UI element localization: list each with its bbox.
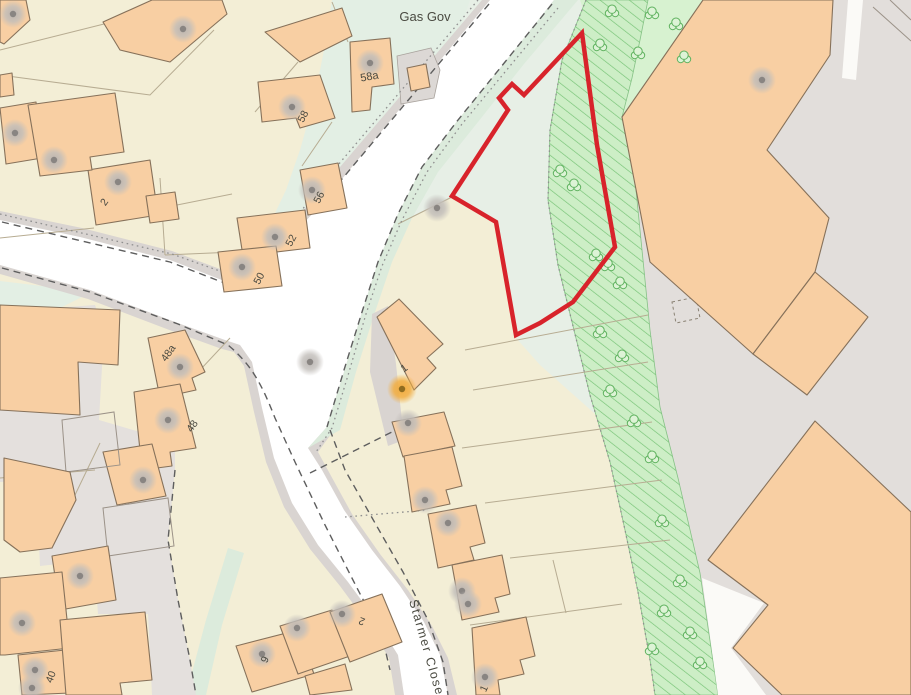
gray-canopy-dot <box>434 509 462 537</box>
gray-canopy-dot <box>40 146 68 174</box>
gray-canopy-dot <box>129 466 157 494</box>
map-viewport: Gas Gov58a58565250248a48409211Starmer Cl… <box>0 0 911 695</box>
gray-canopy-dot <box>748 66 776 94</box>
gray-canopy-dot <box>248 640 276 668</box>
gray-canopy-dot <box>0 0 27 28</box>
gray-canopy-dot <box>154 406 182 434</box>
gray-canopy-dot <box>423 194 451 222</box>
gray-canopy-dot <box>8 609 36 637</box>
gray-canopy-dot <box>66 562 94 590</box>
gray-canopy-dot <box>328 600 356 628</box>
gray-canopy-dot <box>296 348 324 376</box>
gray-canopy-dot <box>394 409 422 437</box>
amber-marker-dot <box>387 374 417 404</box>
map-canvas: Gas Gov58a58565250248a48409211Starmer Cl… <box>0 0 911 695</box>
gray-canopy-dot <box>169 15 197 43</box>
gray-canopy-dot <box>261 223 289 251</box>
gray-canopy-dot <box>1 119 29 147</box>
gray-canopy-dot <box>104 168 132 196</box>
gray-canopy-dot <box>283 614 311 642</box>
gray-canopy-dot <box>454 590 482 618</box>
gray-canopy-dot <box>228 253 256 281</box>
gray-canopy-dot <box>411 486 439 514</box>
map-label: Gas Gov <box>399 9 451 24</box>
